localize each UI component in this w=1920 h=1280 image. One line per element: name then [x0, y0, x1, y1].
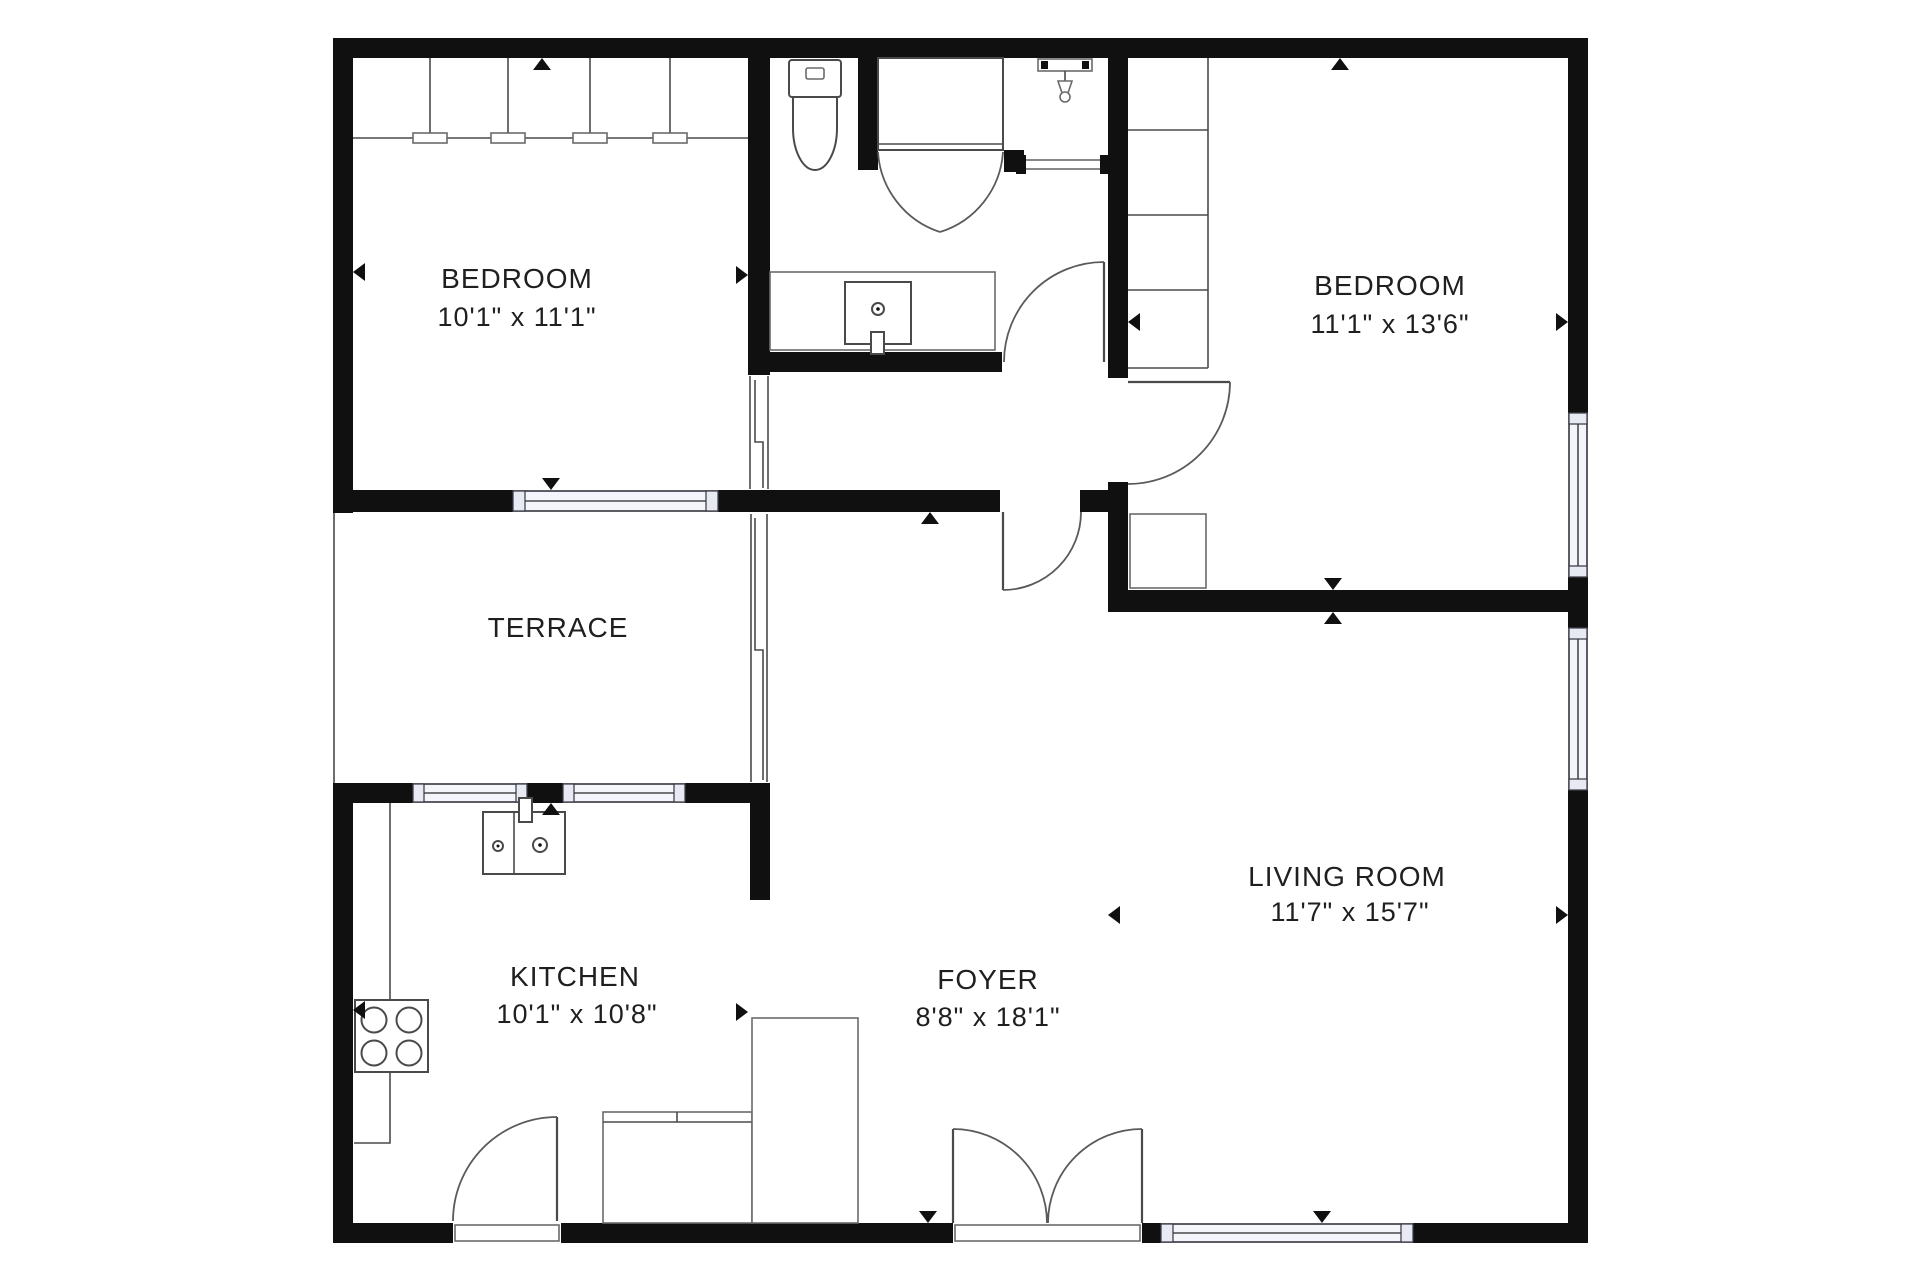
stove: [355, 1000, 428, 1072]
entry-threshold: [955, 1225, 1140, 1241]
marker-bedroom2-right-icon: [1556, 313, 1568, 331]
label-bedroom-2: BEDROOM 11'1" x 13'6": [1310, 270, 1469, 339]
window-kitchen-2: [563, 784, 685, 802]
wall-bathroom-bedroom2-upper: [1108, 58, 1128, 378]
wall-bedroom1-terrace-left: [333, 490, 513, 512]
kitchen-door-threshold: [455, 1225, 559, 1241]
toilet: [789, 60, 841, 170]
wall-bottom-3: [1142, 1223, 1161, 1243]
wall-left-lower: [333, 783, 353, 1243]
bathroom-door: [1004, 262, 1104, 362]
kitchen-dims: 10'1" x 10'8": [496, 999, 657, 1029]
bedroom-1-sliding-door: [750, 376, 768, 489]
marker-bedroom1-left-icon: [353, 263, 365, 281]
floor-plan-page: BEDROOM 10'1" x 11'1" BEDROOM 11'1" x 13…: [0, 0, 1920, 1280]
wall-bottom-1: [333, 1223, 453, 1243]
marker-living-down-icon: [1313, 1211, 1331, 1223]
label-terrace: TERRACE: [488, 612, 629, 643]
windows: [413, 413, 1587, 1242]
bathroom-vanity-sink: [770, 272, 995, 354]
closet-bedroom-2-lower: [1130, 514, 1206, 588]
terrace-sliding-door: [751, 514, 767, 782]
wall-left-upper: [333, 38, 353, 513]
shower-head-fixture: [1038, 59, 1092, 102]
room-labels: BEDROOM 10'1" x 11'1" BEDROOM 11'1" x 13…: [437, 263, 1469, 1032]
entry-double-door: [953, 1129, 1142, 1241]
hall-foyer-door: [1003, 512, 1081, 590]
marker-foyer-down-icon: [919, 1211, 937, 1223]
foyer-name: FOYER: [937, 964, 1038, 995]
wall-kitchen-top-1: [333, 783, 413, 803]
window-living-right: [1569, 628, 1587, 790]
wall-bottom-4: [1413, 1223, 1588, 1243]
wall-bottom-2: [561, 1223, 953, 1243]
foyer-dims: 8'8" x 18'1": [915, 1002, 1060, 1032]
shower-glass-door: [1016, 155, 1109, 174]
marker-bedroom2-up-icon: [1331, 58, 1349, 70]
wall-right-1: [1568, 38, 1588, 413]
bedroom-1-name: BEDROOM: [441, 263, 593, 294]
marker-living-right-icon: [1556, 906, 1568, 924]
marker-bedroom1-down-icon: [542, 478, 560, 490]
bathtub: [878, 58, 1003, 232]
terrace-name: TERRACE: [488, 612, 629, 643]
foyer-cabinet: [752, 1018, 858, 1223]
wall-corridor-bottom-stub: [1080, 490, 1108, 512]
kitchen-name: KITCHEN: [510, 961, 640, 992]
wall-right-2: [1568, 577, 1588, 628]
living-room-dims: 11'7" x 15'7": [1270, 897, 1429, 927]
window-living-bottom: [1161, 1224, 1413, 1242]
marker-kitchen-up-icon: [542, 803, 560, 815]
label-living-room: LIVING ROOM 11'7" x 15'7": [1248, 861, 1446, 927]
label-foyer: FOYER 8'8" x 18'1": [915, 964, 1060, 1032]
marker-bedroom1-up-icon: [533, 58, 551, 70]
interior-walls: [333, 58, 1568, 900]
marker-living-up-icon: [1324, 612, 1342, 624]
bedroom-2-dims: 11'1" x 13'6": [1310, 309, 1469, 339]
closet-bedroom-1: [353, 58, 748, 143]
wall-kitchen-foyer-stub: [750, 783, 770, 900]
window-kitchen-1: [413, 784, 527, 802]
marker-bedroom2-down-icon: [1324, 578, 1342, 590]
label-kitchen: KITCHEN 10'1" x 10'8": [496, 961, 657, 1029]
bedroom-1-dims: 10'1" x 11'1": [437, 302, 596, 332]
bedroom-2-door: [1128, 382, 1230, 484]
marker-bedroom2-left-icon: [1128, 313, 1140, 331]
bedroom-2-name: BEDROOM: [1314, 270, 1466, 301]
kitchen-exterior-door: [453, 1117, 559, 1241]
kitchen-counter-line: [354, 803, 390, 1143]
kitchen-peninsula-counter: [603, 1112, 752, 1223]
wall-corridor-bottom: [718, 490, 1000, 512]
wall-toilet-tub-stub: [858, 58, 878, 170]
marker-bedroom1-right-icon: [736, 266, 748, 284]
window-bedroom2-right: [1569, 413, 1587, 577]
window-bedroom1-terrace: [513, 491, 718, 511]
marker-living-left-icon: [1108, 906, 1120, 924]
wall-top: [333, 38, 1588, 58]
label-bedroom-1: BEDROOM 10'1" x 11'1": [437, 263, 596, 332]
marker-foyer-up-icon: [921, 512, 939, 524]
floor-plan-drawing: BEDROOM 10'1" x 11'1" BEDROOM 11'1" x 13…: [0, 0, 1920, 1280]
wall-bedroom2-living: [1108, 590, 1568, 612]
wall-bedroom1-bathroom: [748, 58, 770, 375]
marker-kitchen-right-icon: [736, 1003, 748, 1021]
wall-right-3: [1568, 790, 1588, 1243]
living-room-name: LIVING ROOM: [1248, 861, 1446, 892]
